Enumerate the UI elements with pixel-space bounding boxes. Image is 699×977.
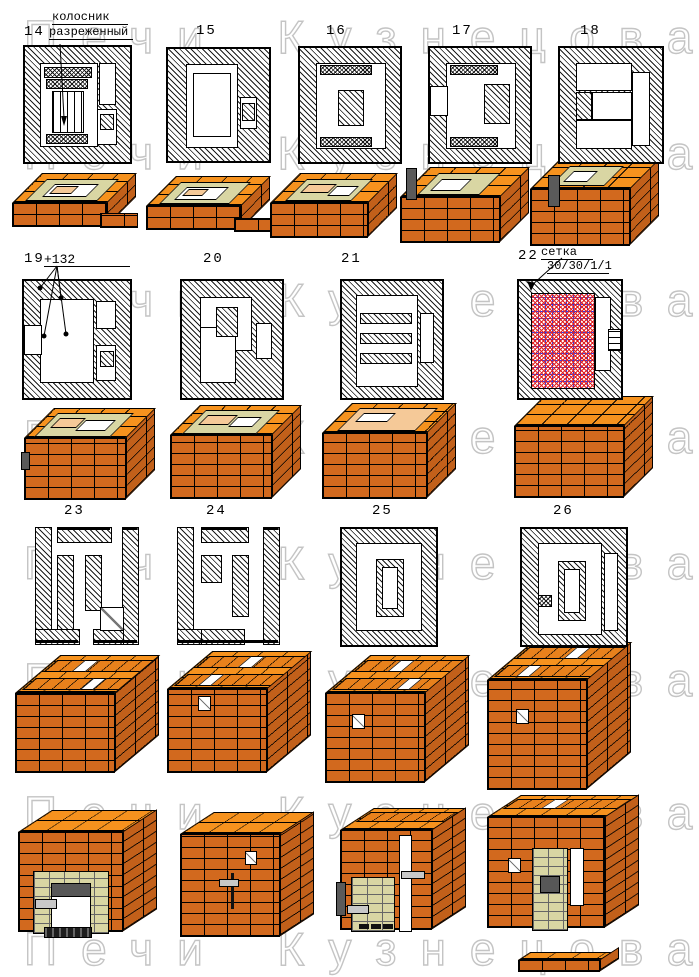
leader-lines xyxy=(0,0,699,977)
stove-course-diagram: Печи Кузнецова Печи Кузнецова Печи Кузне… xyxy=(0,0,699,977)
